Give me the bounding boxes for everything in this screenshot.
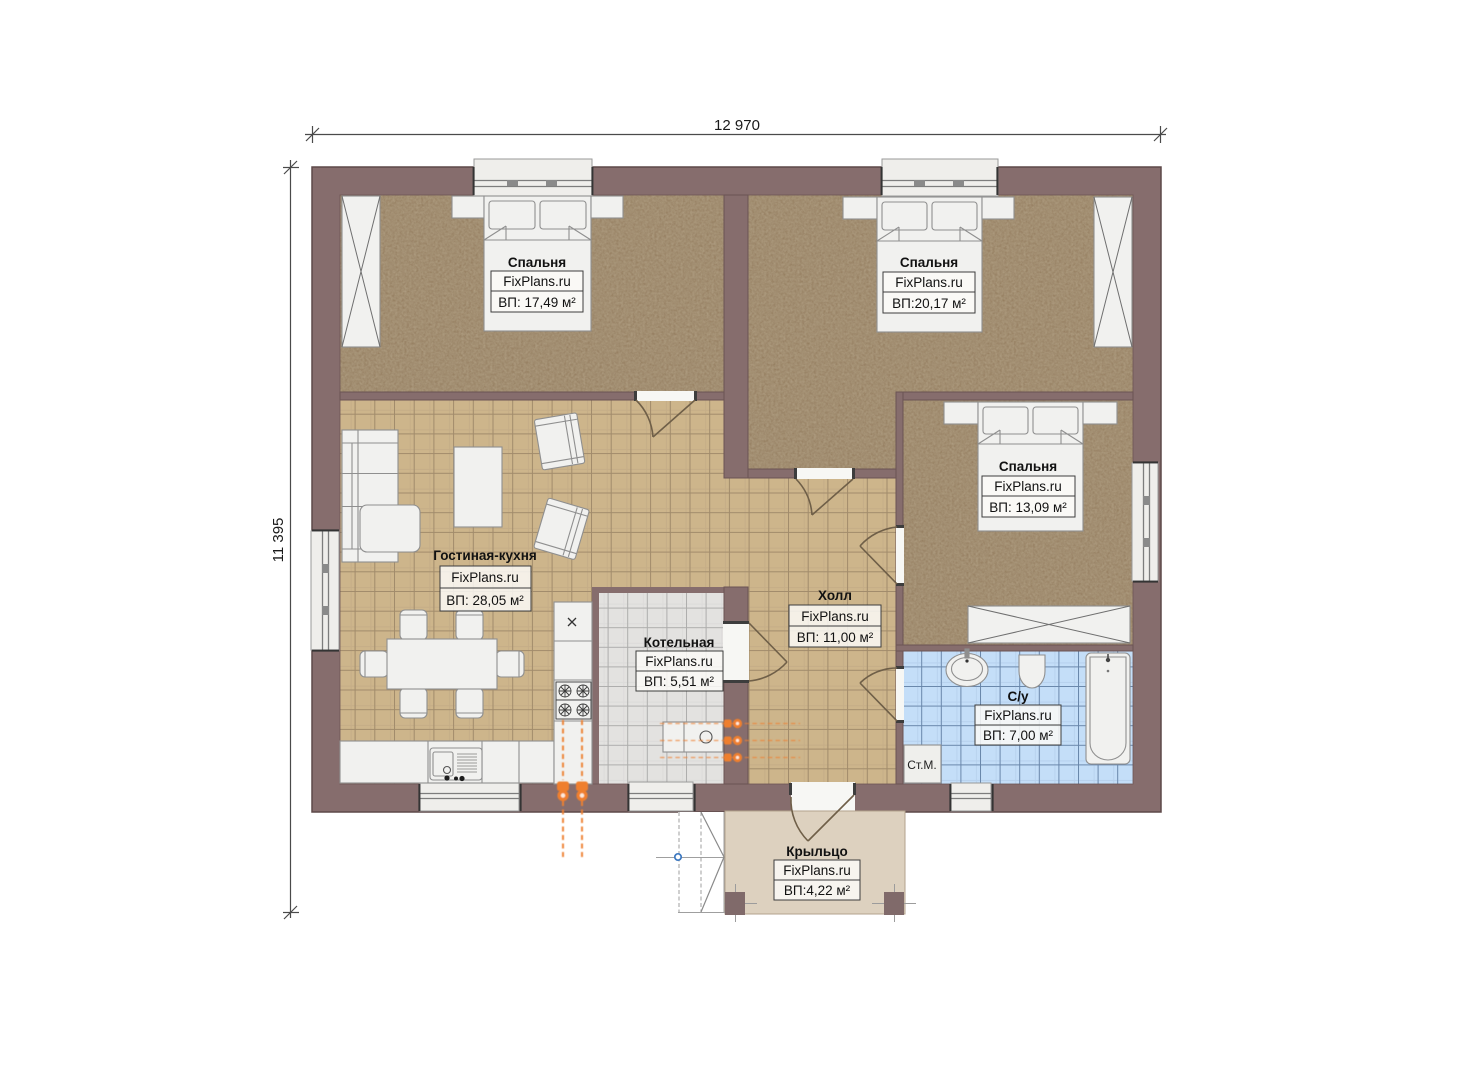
svg-text:Спальня: Спальня [999,459,1057,474]
svg-text:FixPlans.ru: FixPlans.ru [994,479,1062,494]
svg-text:FixPlans.ru: FixPlans.ru [645,654,713,669]
svg-text:ВП: 5,51 м²: ВП: 5,51 м² [644,674,715,689]
svg-text:FixPlans.ru: FixPlans.ru [503,274,571,289]
svg-text:12 970: 12 970 [714,117,760,134]
svg-text:Спальня: Спальня [900,255,958,270]
svg-text:С/у: С/у [1007,689,1029,704]
svg-text:ВП: 7,00 м²: ВП: 7,00 м² [983,728,1054,743]
svg-text:FixPlans.ru: FixPlans.ru [895,275,963,290]
svg-text:Ст.М.: Ст.М. [907,758,937,772]
svg-text:FixPlans.ru: FixPlans.ru [783,863,851,878]
svg-text:Котельная: Котельная [644,635,715,650]
svg-text:Холл: Холл [818,588,852,603]
svg-text:ВП: 17,49 м²: ВП: 17,49 м² [498,295,576,310]
svg-text:11 395: 11 395 [270,518,287,563]
svg-text:ВП:20,17 м²: ВП:20,17 м² [892,296,966,311]
svg-text:Спальня: Спальня [508,255,566,270]
svg-text:FixPlans.ru: FixPlans.ru [801,609,869,624]
svg-text:FixPlans.ru: FixPlans.ru [451,570,519,585]
svg-text:ВП:4,22 м²: ВП:4,22 м² [784,883,851,898]
svg-text:ВП: 28,05 м²: ВП: 28,05 м² [446,593,524,608]
svg-text:Гостиная-кухня: Гостиная-кухня [433,548,536,563]
svg-text:Крыльцо: Крыльцо [786,844,847,859]
svg-text:FixPlans.ru: FixPlans.ru [984,708,1052,723]
svg-text:ВП: 13,09 м²: ВП: 13,09 м² [989,500,1067,515]
svg-text:ВП: 11,00 м²: ВП: 11,00 м² [797,630,874,645]
